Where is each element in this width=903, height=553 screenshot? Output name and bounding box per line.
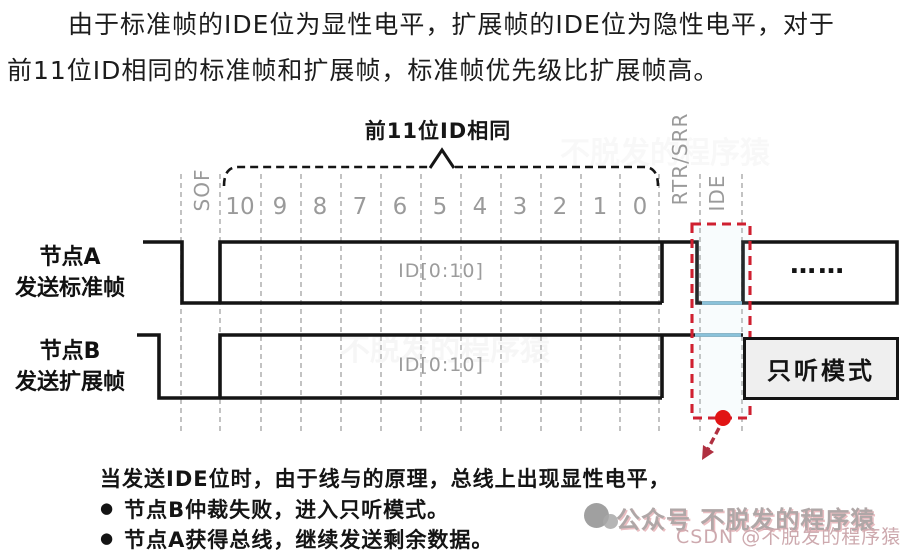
id-brace xyxy=(224,167,658,186)
listen-mode-text: 只听模式 xyxy=(767,351,875,386)
bit-number: 2 xyxy=(540,192,580,222)
id-brace-caret xyxy=(430,150,454,168)
bit-number: 5 xyxy=(420,192,460,222)
bit-number: 8 xyxy=(300,192,340,222)
node-b-desc: 发送扩展帧 xyxy=(0,367,140,398)
rtr-srr-field-label: RTR/SRR xyxy=(669,84,691,234)
node-b-id-field-label: ID[0:10] xyxy=(341,354,541,376)
node-a-name: 节点A xyxy=(0,242,140,273)
ide-highlight-box xyxy=(692,224,750,418)
bullet-icon: ● xyxy=(100,524,113,552)
node-b-name: 节点B xyxy=(0,336,140,367)
note-bullet-1: ● 节点B仲裁失败，进入只听模式。 xyxy=(100,494,449,524)
bullet-icon: ● xyxy=(100,494,113,522)
note-line1: 当发送IDE位时，由于线与的原理，总线上出现显性电平， xyxy=(100,463,671,493)
bit-number: 1 xyxy=(580,192,620,222)
note-bullet-2-text: 节点A获得总线，继续发送剩余数据。 xyxy=(124,524,493,553)
node-a-desc: 发送标准帧 xyxy=(0,273,140,304)
node-a-id-field-label: ID[0:10] xyxy=(341,260,541,282)
bit-number-row: 10 9 8 7 6 5 4 3 2 1 0 xyxy=(220,192,660,222)
node-b-label: 节点B 发送扩展帧 xyxy=(0,336,140,398)
sof-field-label: SOF xyxy=(191,135,213,245)
brace-caption: 前11位ID相同 xyxy=(318,115,558,145)
listen-mode-box: 只听模式 xyxy=(743,337,899,400)
node-a-label: 节点A 发送标准帧 xyxy=(0,242,140,304)
note-bullet-2: ● 节点A获得总线，继续发送剩余数据。 xyxy=(100,524,493,553)
bit-number: 3 xyxy=(500,192,540,222)
bit-number: 7 xyxy=(340,192,380,222)
bit-number: 9 xyxy=(260,192,300,222)
arbitration-arrow-line xyxy=(708,428,719,449)
bit-number: 0 xyxy=(620,192,660,222)
can-arbitration-figure: 由于标准帧的IDE位为显性电平，扩展帧的IDE位为隐性电平，对于 前11位ID相… xyxy=(0,0,903,553)
arbitration-point-dot xyxy=(715,410,731,426)
bit-number: 4 xyxy=(460,192,500,222)
bit-number: 10 xyxy=(220,192,260,222)
note-bullet-1-text: 节点B仲裁失败，进入只听模式。 xyxy=(124,494,449,524)
ide-field-label: IDE xyxy=(706,148,728,238)
bit-number: 6 xyxy=(380,192,420,222)
node-a-continuation-dots: …… xyxy=(758,250,878,280)
watermark-line2: CSDN @不脱发的程序猿 xyxy=(676,522,901,549)
